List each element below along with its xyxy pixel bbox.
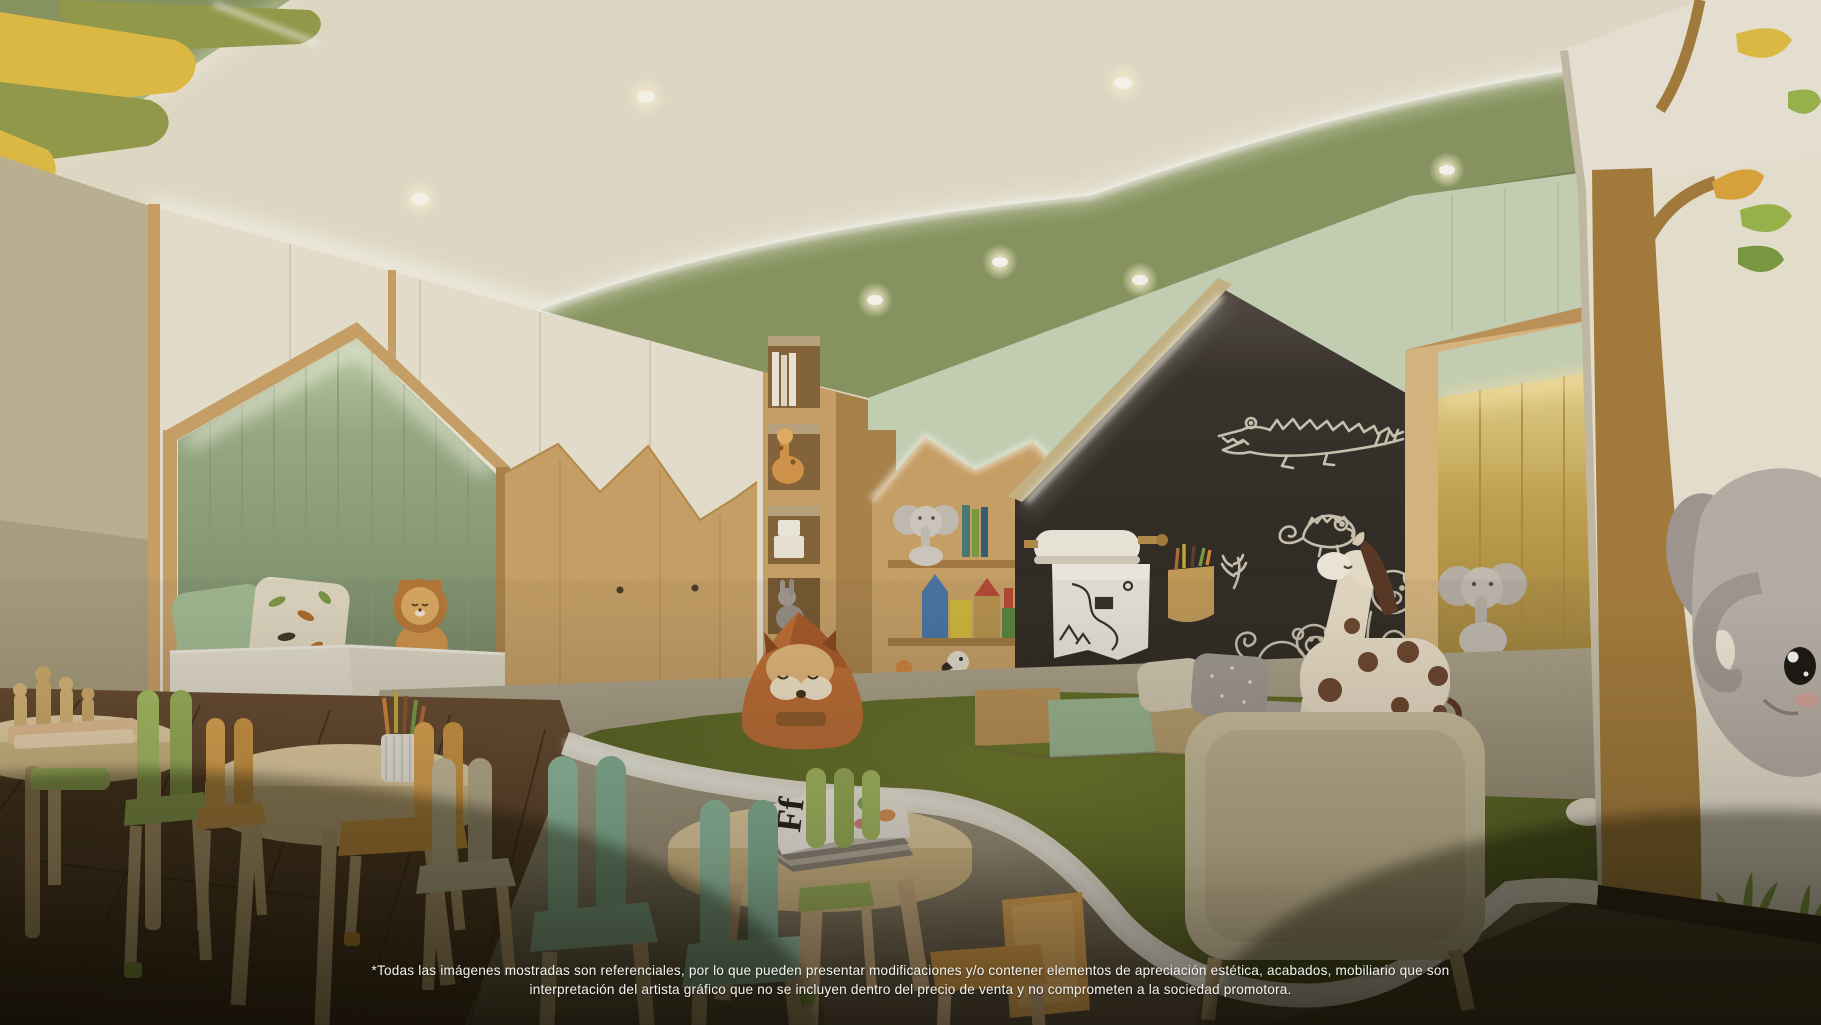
disclaimer: *Todas las imágenes mostradas son refere… <box>0 962 1821 1000</box>
disclaimer-line-2: interpretación del artista gráfico que n… <box>530 982 1292 997</box>
vignette <box>0 0 1821 1025</box>
scene-canvas: Ff <box>0 0 1821 1025</box>
playroom-render: Ff <box>0 0 1821 1025</box>
disclaimer-line-1: *Todas las imágenes mostradas son refere… <box>372 963 1450 978</box>
